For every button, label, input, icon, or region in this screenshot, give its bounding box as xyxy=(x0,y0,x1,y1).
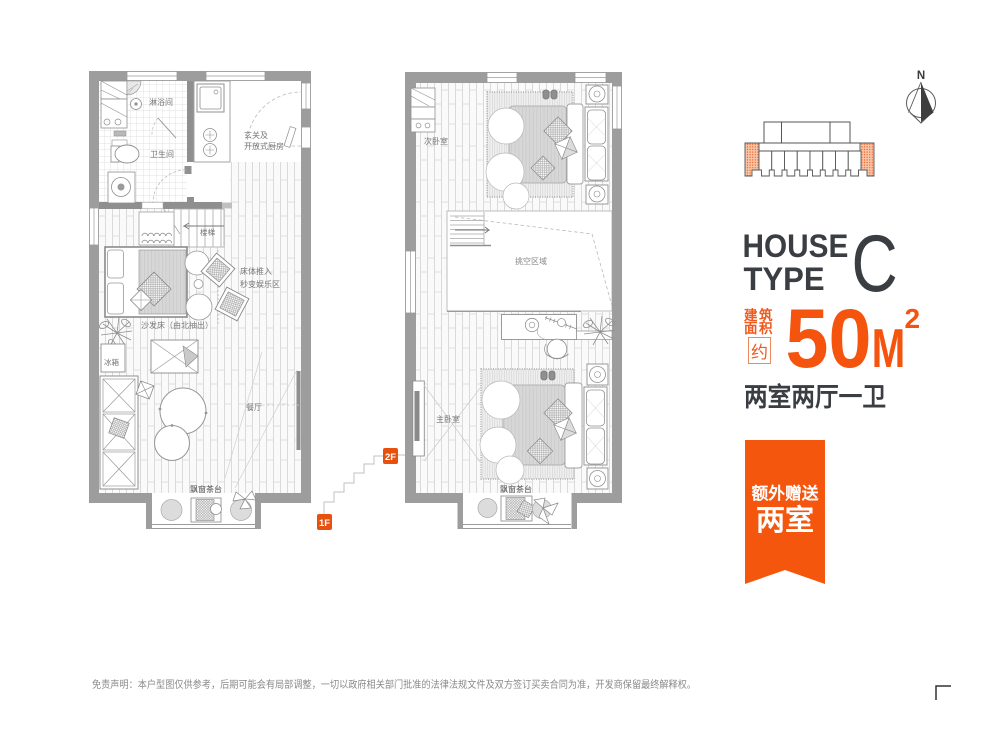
svg-text:玄关及: 玄关及 xyxy=(244,130,268,140)
svg-text:面积: 面积 xyxy=(744,320,774,336)
svg-text:2F: 2F xyxy=(385,452,396,463)
svg-text:飘窗茶台: 飘窗茶台 xyxy=(190,484,222,494)
svg-text:1F: 1F xyxy=(319,518,330,529)
svg-text:冰箱: 冰箱 xyxy=(104,357,119,367)
svg-text:楼梯: 楼梯 xyxy=(200,227,215,237)
svg-text:两室两厅一卫: 两室两厅一卫 xyxy=(744,382,886,412)
svg-text:挑空区域: 挑空区域 xyxy=(515,256,547,266)
svg-text:开放式厨房: 开放式厨房 xyxy=(244,141,284,151)
svg-text:床体推入: 床体推入 xyxy=(240,266,272,276)
svg-text:约: 约 xyxy=(751,343,768,362)
svg-text:淋浴间: 淋浴间 xyxy=(149,97,173,107)
svg-text:额外赠送: 额外赠送 xyxy=(752,483,820,503)
svg-text:N: N xyxy=(917,70,925,82)
svg-text:主卧室: 主卧室 xyxy=(436,414,460,424)
svg-text:50: 50 xyxy=(786,292,872,386)
svg-text:两室: 两室 xyxy=(756,503,814,537)
svg-text:卫生间: 卫生间 xyxy=(150,149,174,159)
svg-text:M: M xyxy=(872,318,905,380)
svg-text:HOUSE: HOUSE xyxy=(743,228,849,264)
svg-text:沙发床（由北抽出）: 沙发床（由北抽出） xyxy=(141,320,213,330)
svg-text:2: 2 xyxy=(905,303,921,334)
svg-text:次卧室: 次卧室 xyxy=(424,136,448,146)
svg-text:秒变娱乐区: 秒变娱乐区 xyxy=(240,279,280,289)
svg-text:餐厅: 餐厅 xyxy=(246,403,262,412)
svg-text:免责声明：本户型图仅供参考，后期可能会有局部调整，一切以政府: 免责声明：本户型图仅供参考，后期可能会有局部调整，一切以政府相关部门批准的法律法… xyxy=(92,678,696,691)
svg-text:飘窗茶台: 飘窗茶台 xyxy=(500,484,532,494)
